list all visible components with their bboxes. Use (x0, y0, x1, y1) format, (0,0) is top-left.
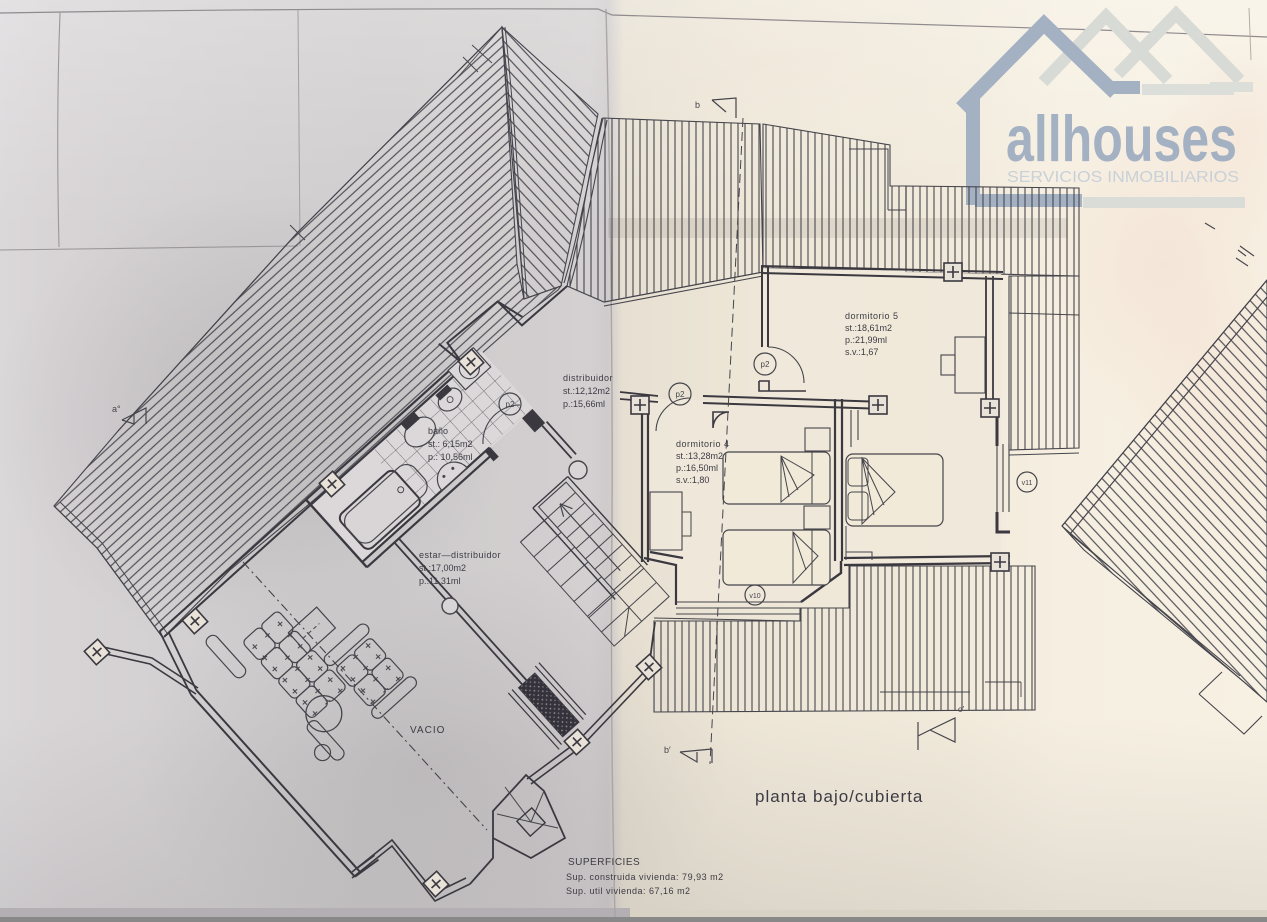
svg-text:st.:18,61m2: st.:18,61m2 (845, 323, 892, 333)
svg-text:p.:11,31ml: p.:11,31ml (419, 576, 460, 586)
svg-text:p2: p2 (676, 390, 685, 399)
svg-text:SUPERFICIES: SUPERFICIES (568, 857, 640, 868)
svg-text:b: b (695, 100, 700, 110)
svg-text:baño: baño (428, 426, 448, 436)
svg-text:Sup. construida vivienda: 79,9: Sup. construida vivienda: 79,93 m2 (566, 872, 724, 882)
svg-text:o′: o′ (958, 705, 964, 714)
svg-text:p.:16,50ml: p.:16,50ml (676, 463, 718, 473)
svg-text:v11: v11 (1022, 480, 1033, 487)
svg-text:dormitorio 5: dormitorio 5 (845, 311, 899, 321)
svg-text:st.: 6,15m2: st.: 6,15m2 (428, 439, 473, 449)
svg-text:st.:13,28m2: st.:13,28m2 (676, 451, 723, 461)
svg-text:VACIO: VACIO (410, 725, 445, 736)
svg-text:estar—distribuidor: estar—distribuidor (419, 550, 501, 560)
svg-text:p.:15,66ml: p.:15,66ml (563, 399, 605, 409)
svg-text:v10: v10 (749, 593, 760, 600)
svg-text:a°: a° (112, 404, 121, 414)
svg-text:Sup. util vivienda: 67,16 m2: Sup. util vivienda: 67,16 m2 (566, 886, 691, 896)
svg-text:p.:21,99ml: p.:21,99ml (845, 335, 887, 345)
svg-text:SERVICIOS INMOBILIARIOS: SERVICIOS INMOBILIARIOS (1007, 169, 1239, 186)
svg-text:st.:17,00m2: st.:17,00m2 (419, 563, 466, 573)
svg-text:p.: 10,56ml: p.: 10,56ml (428, 452, 473, 462)
svg-text:s.v.:1,80: s.v.:1,80 (676, 475, 709, 485)
svg-text:p2: p2 (761, 360, 770, 369)
svg-text:st.:12,12m2: st.:12,12m2 (563, 386, 610, 396)
svg-text:p2: p2 (506, 400, 515, 409)
svg-text:b′: b′ (664, 745, 671, 755)
svg-text:allhouses: allhouses (1006, 102, 1237, 175)
svg-text:distribuidor: distribuidor (563, 373, 613, 383)
svg-text:planta bajo/cubierta: planta bajo/cubierta (755, 787, 923, 806)
svg-text:s.v.:1,67: s.v.:1,67 (845, 347, 878, 357)
svg-text:dormitorio 4: dormitorio 4 (676, 439, 730, 449)
